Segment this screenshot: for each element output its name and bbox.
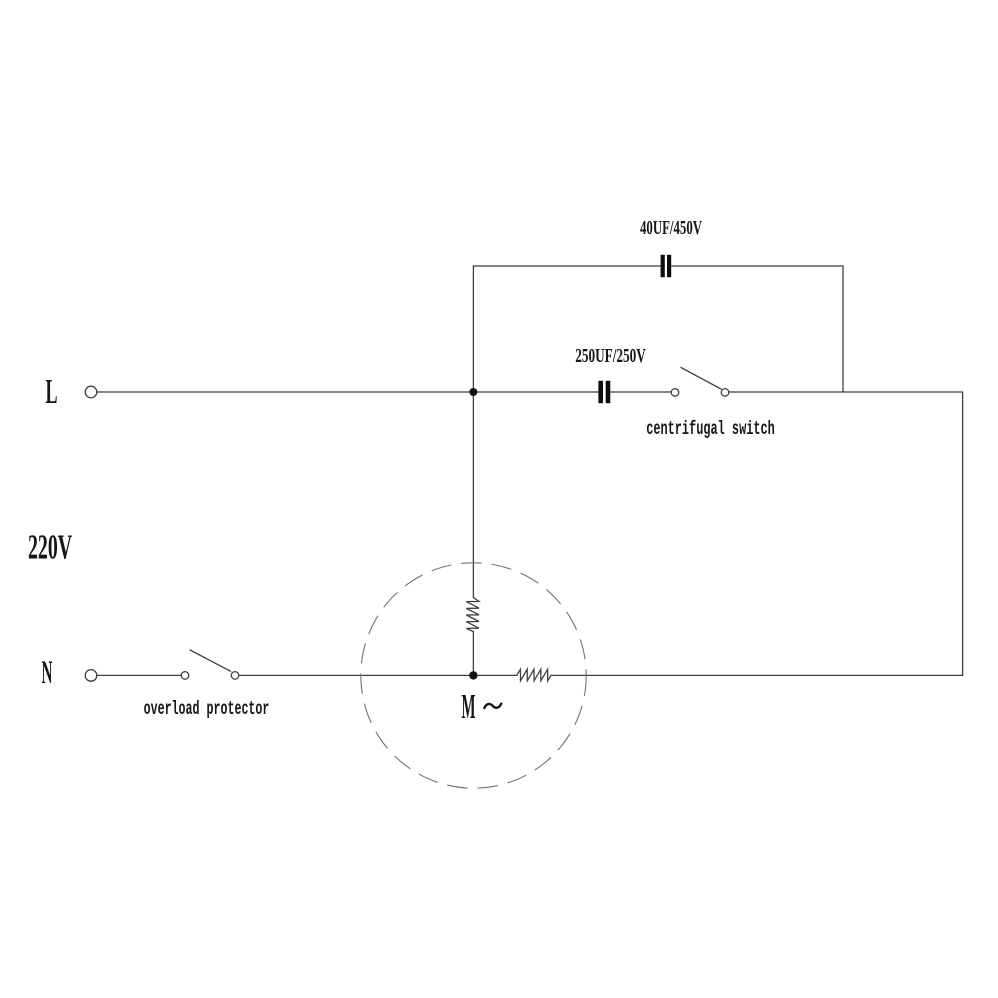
svg-text:220V: 220V bbox=[28, 528, 72, 567]
svg-text:centrifugal switch: centrifugal switch bbox=[646, 418, 775, 440]
svg-text:L: L bbox=[46, 372, 58, 411]
svg-text:M: M bbox=[462, 687, 476, 726]
svg-text:250UF/250V: 250UF/250V bbox=[575, 345, 646, 367]
svg-text:N: N bbox=[42, 655, 53, 691]
svg-text:40UF/450V: 40UF/450V bbox=[640, 217, 702, 239]
svg-text:overload protector: overload protector bbox=[144, 698, 270, 720]
